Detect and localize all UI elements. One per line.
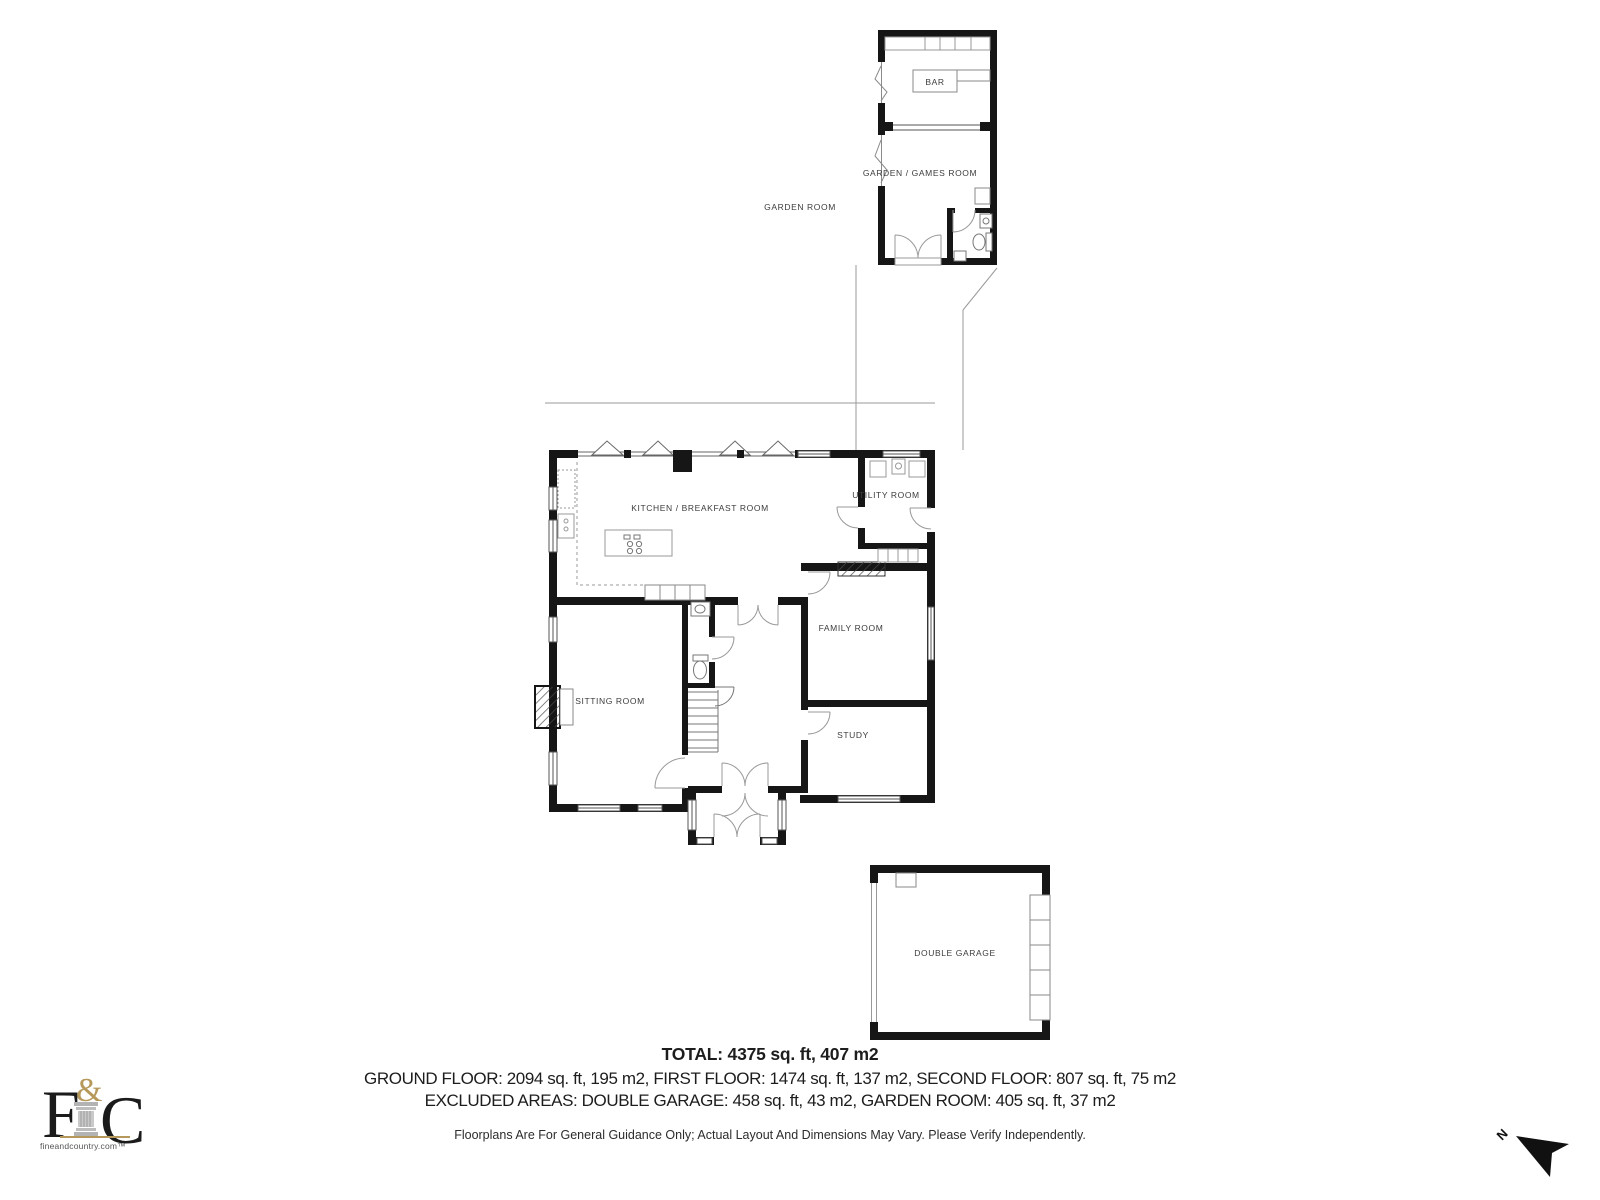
- fireplace-icon: [535, 686, 573, 728]
- bar-label: BAR: [925, 77, 944, 87]
- window-icon: [838, 796, 900, 802]
- window-icon: [928, 607, 934, 660]
- wall-pier: [673, 450, 692, 472]
- garden-wc: [947, 208, 997, 265]
- room-divider-wall: [878, 122, 997, 131]
- main-house: KITCHEN / BREAKFAST ROOM UTILITY ROOM FA…: [535, 441, 935, 845]
- study-label: STUDY: [837, 730, 869, 740]
- garden-room-label: GARDEN ROOM: [764, 202, 836, 212]
- floor-areas-text: GROUND FLOOR: 2094 sq. ft, 195 m2, FIRST…: [0, 1069, 1540, 1089]
- excluded-areas-text: EXCLUDED AREAS: DOUBLE GARAGE: 458 sq. f…: [0, 1091, 1540, 1111]
- logo-gold-line: [60, 1136, 130, 1138]
- sink-icon: [980, 214, 992, 228]
- utility-room: [837, 450, 935, 562]
- toilet-icon: [973, 233, 992, 251]
- garage-label: DOUBLE GARAGE: [914, 948, 996, 958]
- fine-and-country-logo: F & C fineandcountry.com™: [40, 1058, 150, 1153]
- sink-icon: [558, 514, 574, 538]
- hall-double-door: [738, 605, 778, 625]
- sitting-room-door: [655, 758, 685, 788]
- floorplan-drawing: BAR GARDEN / GAMES ROOM GARDEN ROOM: [0, 0, 1600, 1200]
- kitchen-island: [605, 530, 672, 556]
- first-floor-outline: [545, 265, 997, 450]
- total-area-text: TOTAL: 4375 sq. ft, 407 m2: [0, 1044, 1540, 1065]
- disclaimer-text: Floorplans Are For General Guidance Only…: [0, 1128, 1540, 1142]
- logo-website: fineandcountry.com™: [40, 1141, 150, 1151]
- garage-storage: [1030, 895, 1050, 1020]
- cupboard: [975, 188, 990, 204]
- window-icon: [578, 805, 662, 811]
- staircase: [688, 687, 734, 752]
- cloakroom-wc: [682, 597, 734, 688]
- toilet-icon: [693, 655, 708, 679]
- sink-icon: [691, 602, 710, 616]
- appliance-icon: [870, 459, 925, 477]
- family-room-door: [808, 572, 830, 594]
- garden-games-room-label: GARDEN / GAMES ROOM: [863, 168, 977, 178]
- garden-double-door: [895, 235, 941, 265]
- entrance-porch: [688, 793, 786, 845]
- double-garage: DOUBLE GARAGE: [870, 865, 1050, 1040]
- inner-double-door: [722, 763, 768, 786]
- kitchen-label: KITCHEN / BREAKFAST ROOM: [631, 503, 769, 513]
- family-room-label: FAMILY ROOM: [819, 623, 884, 633]
- bar-counter: [885, 37, 990, 50]
- front-double-door: [714, 793, 768, 837]
- garage-door-icon: [872, 883, 877, 1022]
- study-door: [808, 712, 830, 734]
- column-icon: [73, 1102, 99, 1136]
- fireplace-icon: [838, 562, 885, 576]
- floorplan-page: BAR GARDEN / GAMES ROOM GARDEN ROOM: [0, 0, 1600, 1200]
- garden-room-building: BAR GARDEN / GAMES ROOM: [863, 30, 997, 265]
- utility-label: UTILITY ROOM: [852, 490, 920, 500]
- basin-icon: [954, 251, 966, 261]
- sitting-room-label: SITTING ROOM: [575, 696, 645, 706]
